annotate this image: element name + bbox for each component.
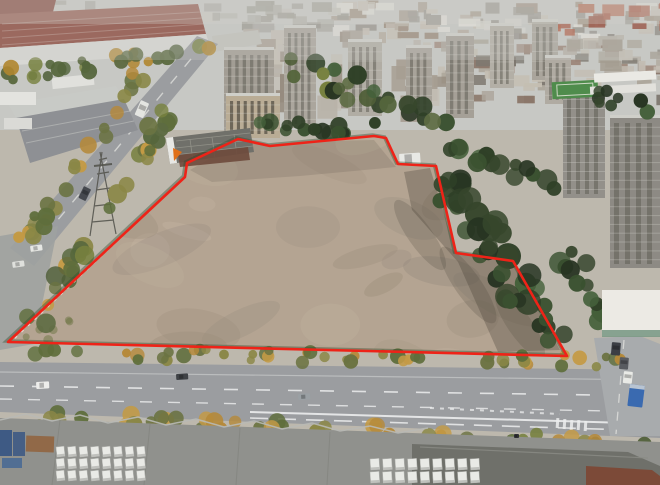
shipping-containers [13,432,25,456]
box-truck [420,458,430,470]
dark-suv [611,342,621,356]
box-truck [137,458,146,469]
box-truck [91,470,100,481]
box-truck [91,458,100,469]
white-car [36,381,49,389]
box-truck [68,470,77,481]
box-truck [445,458,455,470]
box-truck [137,446,146,457]
box-truck [79,446,88,457]
box-truck [125,446,134,457]
white-car [623,371,633,384]
box-truck [102,470,111,481]
box-truck [79,458,88,469]
box-truck [370,471,380,483]
box-truck [125,458,134,469]
box-truck [458,458,468,470]
box-truck [68,458,77,469]
box-truck [125,470,134,481]
box-truck [383,471,393,483]
box-truck [102,446,111,457]
box-truck [470,458,480,470]
rusty-roof [26,436,55,453]
box-truck [370,458,380,470]
box-truck [395,458,405,470]
box-truck [470,471,480,483]
box-truck [408,471,418,483]
midrise-storefront [602,330,660,337]
midrise-face [602,290,660,336]
gray-suv [619,357,629,370]
box-truck [56,458,65,469]
box-truck [395,471,405,483]
box-truck [420,471,430,483]
dark-car [176,373,188,380]
small-white-building [4,118,32,129]
box-truck [114,458,123,469]
aerial-photo [0,0,660,485]
box-truck [408,458,418,470]
box-truck [433,471,443,483]
box-truck [56,470,65,481]
box-truck [445,471,455,483]
scooter [514,434,519,438]
box-truck [79,470,88,481]
shipping-containers [2,458,22,468]
haze-overlay-top [0,0,660,24]
box-truck [56,446,65,457]
box-truck [137,470,146,481]
shipping-containers [0,430,12,456]
box-truck [114,446,123,457]
box-truck [383,458,393,470]
aerial-scene-svg [0,0,660,485]
box-truck [68,446,77,457]
box-truck [433,458,443,470]
white-midrise-building [602,290,660,337]
blue-truck [627,384,645,408]
box-truck [458,471,468,483]
gray-car [298,393,310,400]
box-truck [114,470,123,481]
box-truck [102,458,111,469]
small-white-building [0,92,36,105]
box-truck [91,446,100,457]
